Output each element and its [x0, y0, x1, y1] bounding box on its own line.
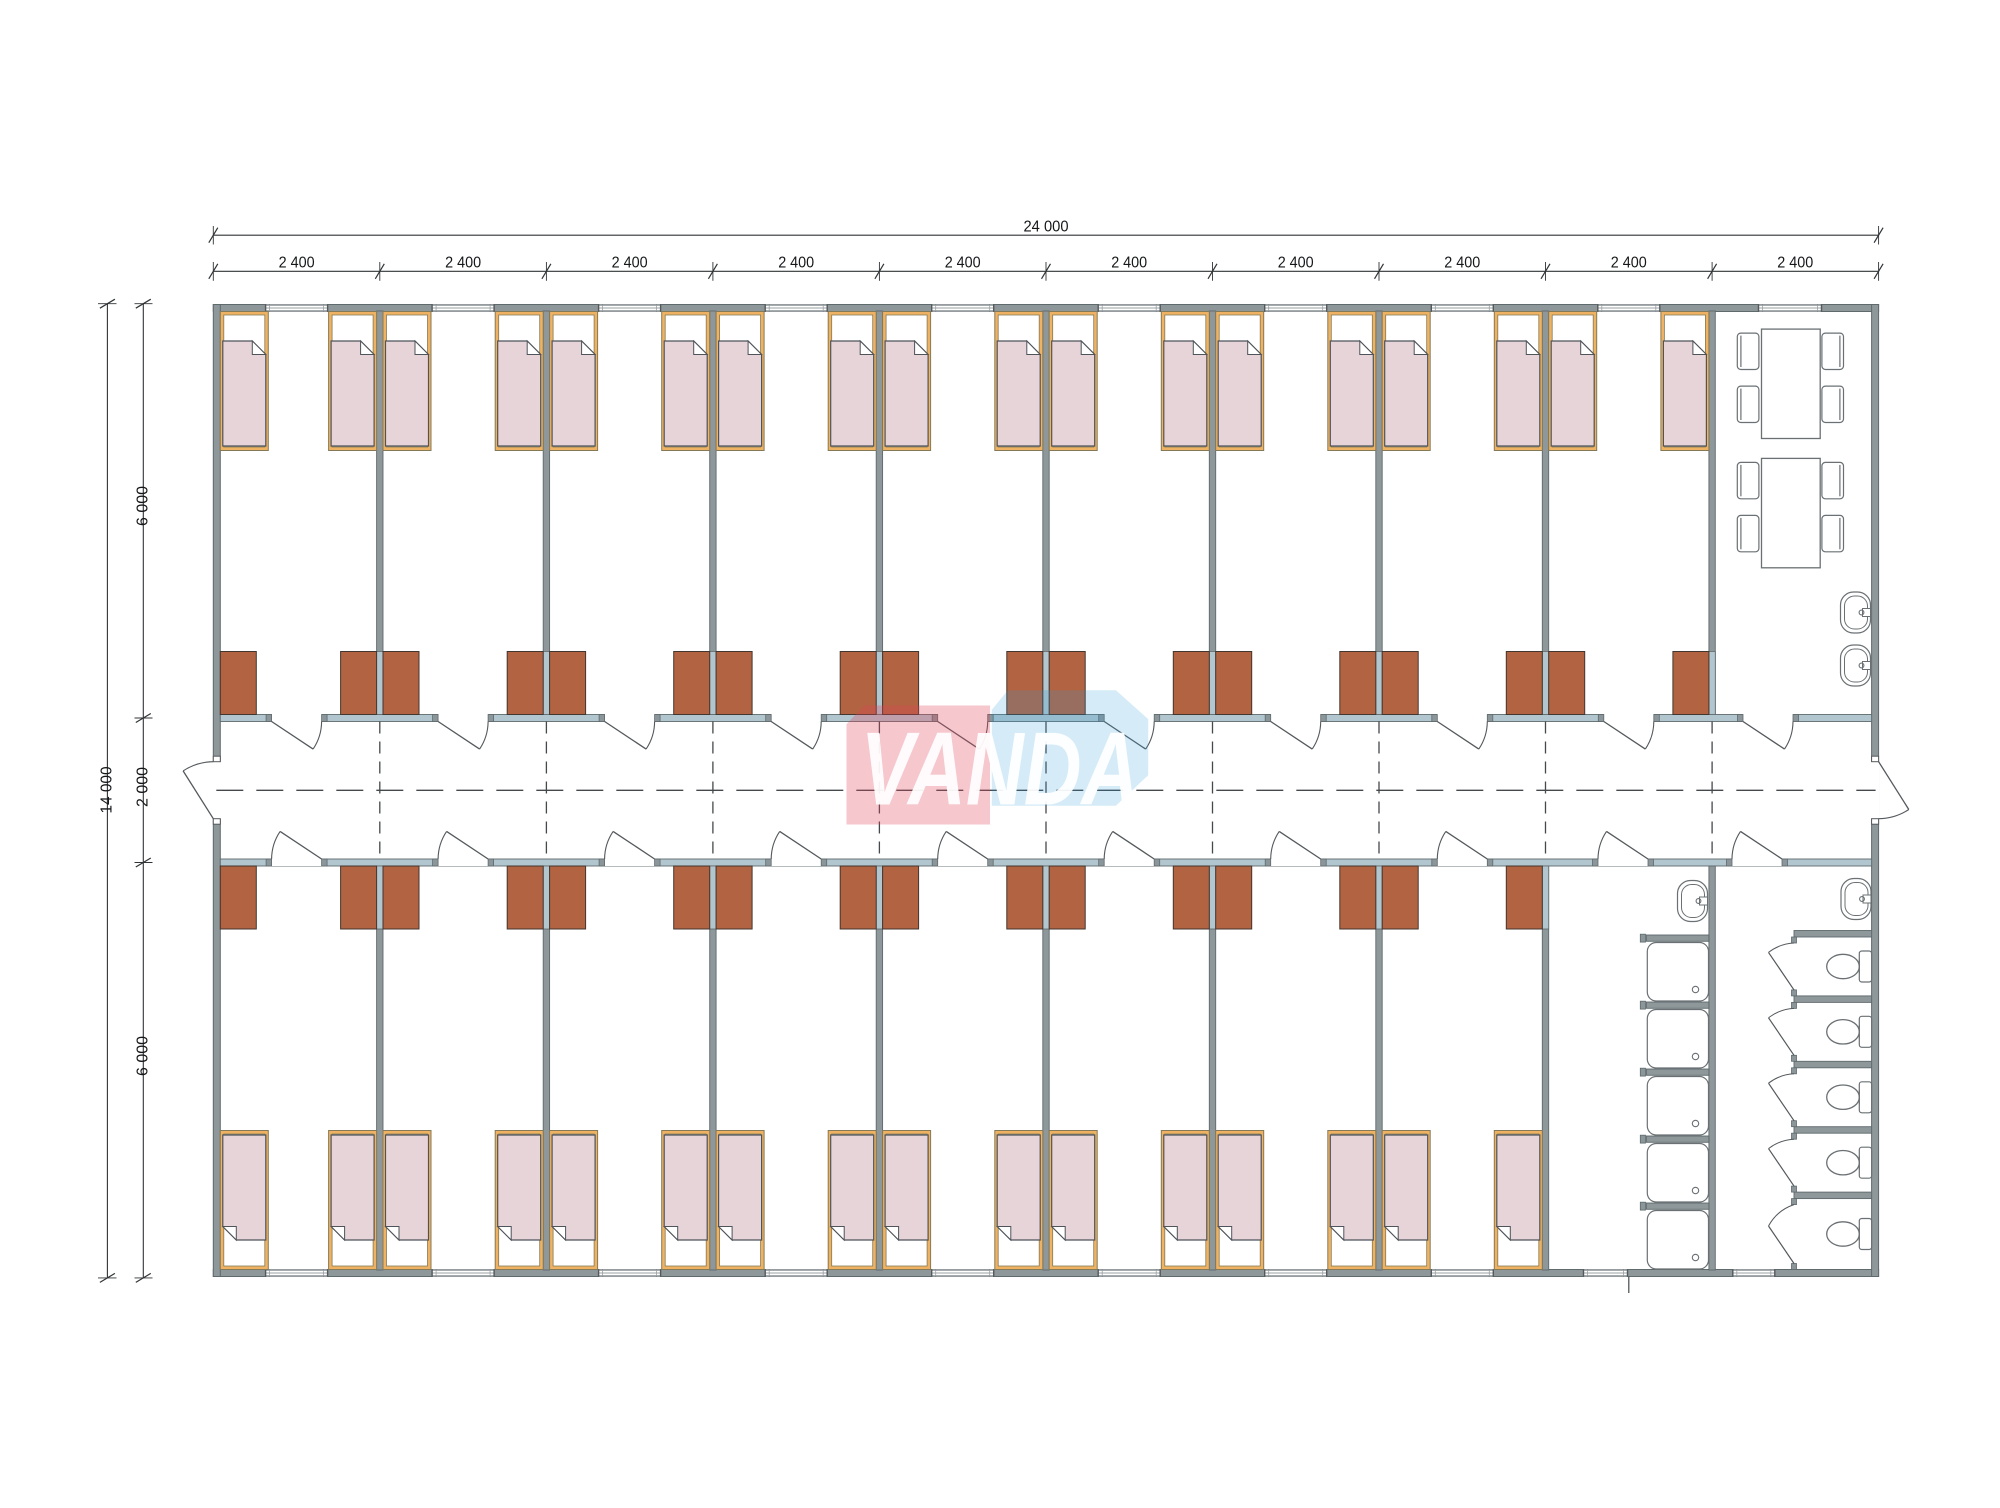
svg-text:2 400: 2 400	[1278, 255, 1314, 272]
svg-text:2 400: 2 400	[445, 255, 481, 272]
svg-text:2 400: 2 400	[1777, 255, 1813, 272]
svg-text:6 000: 6 000	[135, 1036, 152, 1076]
svg-text:2 400: 2 400	[778, 255, 814, 272]
svg-text:2 400: 2 400	[1111, 255, 1147, 272]
svg-text:2 000: 2 000	[135, 767, 152, 807]
svg-text:2 400: 2 400	[1611, 255, 1647, 272]
svg-text:24 000: 24 000	[1024, 219, 1069, 236]
svg-text:2 400: 2 400	[945, 255, 981, 272]
svg-text:14 000: 14 000	[99, 766, 116, 813]
svg-text:2 400: 2 400	[612, 255, 648, 272]
svg-text:2 400: 2 400	[279, 255, 315, 272]
svg-text:VANDA: VANDA	[861, 710, 1140, 827]
svg-text:6 000: 6 000	[135, 486, 152, 526]
svg-text:2 400: 2 400	[1444, 255, 1480, 272]
